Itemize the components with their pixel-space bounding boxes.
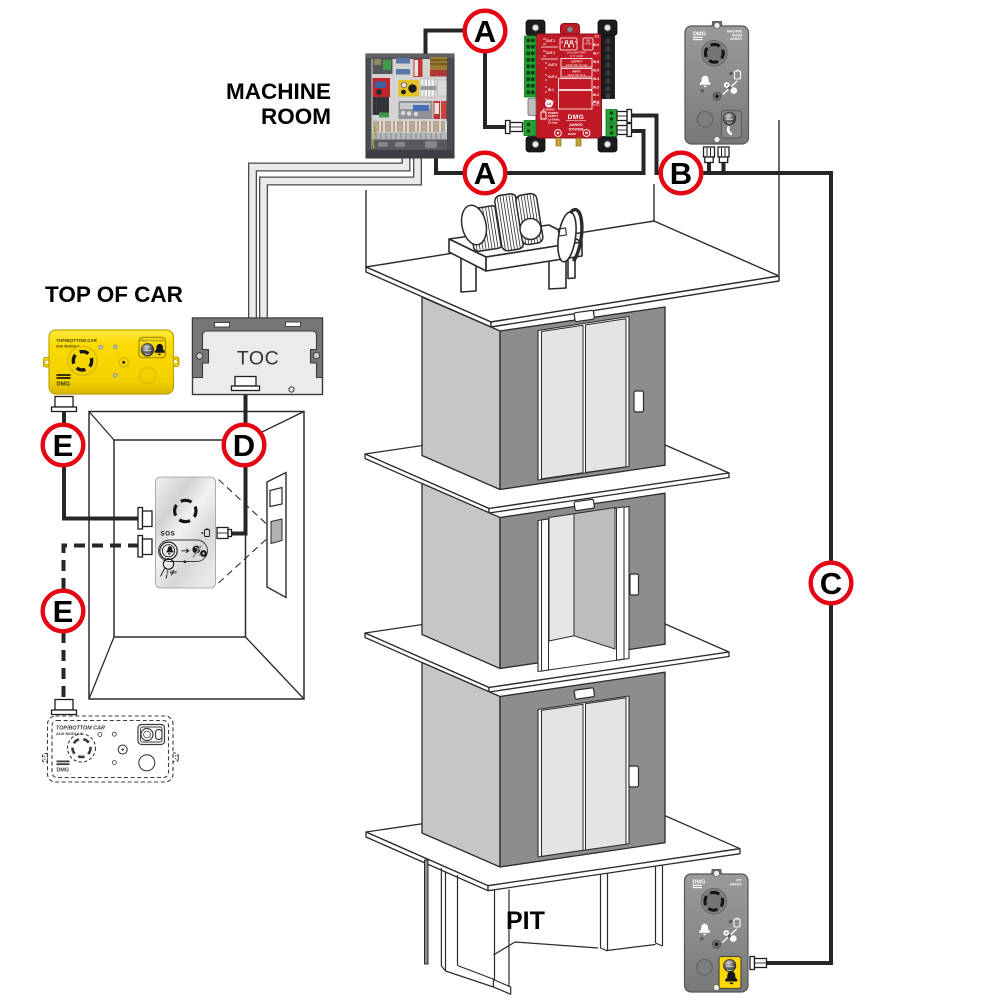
svg-text:DMG: DMG	[57, 768, 70, 774]
svg-text:D: D	[233, 428, 255, 463]
svg-text:CE: CE	[592, 102, 600, 108]
svg-text:12/24 Vdc 1A max: 12/24 Vdc 1A max	[566, 63, 588, 67]
svg-text:TOP OF CAR: TOP OF CAR	[45, 282, 183, 307]
svg-text:PRESS FOR ALARM: PRESS FOR ALARM	[140, 339, 164, 342]
svg-text:IN.1: IN.1	[548, 88, 554, 92]
svg-text:AARGO: AARGO	[730, 882, 742, 886]
svg-text:OUT.1: OUT.1	[546, 39, 555, 43]
svg-text:P.1: P.1	[595, 35, 600, 39]
svg-text:E: E	[53, 428, 74, 463]
svg-text:SOS: SOS	[161, 531, 176, 538]
svg-text:B: B	[670, 156, 692, 191]
svg-text:AARGO: AARGO	[730, 37, 742, 41]
svg-text:IN.7: IN.7	[593, 52, 599, 56]
svg-text:3.7V 4.2Ah: 3.7V 4.2Ah	[570, 54, 584, 58]
svg-text:IN.2: IN.2	[593, 93, 599, 97]
svg-text:A: A	[474, 14, 496, 49]
svg-text:OUT.3: OUT.3	[548, 63, 557, 67]
svg-text:MAIN: MAIN	[568, 132, 576, 136]
svg-text:ROOM: ROOM	[261, 104, 331, 129]
svg-text:DMG: DMG	[57, 382, 71, 388]
svg-text:E: E	[53, 594, 74, 629]
svg-text:IN.6: IN.6	[593, 60, 599, 64]
svg-text:MACHINE: MACHINE	[226, 79, 331, 104]
svg-text:PIT: PIT	[506, 907, 545, 935]
svg-text:IN.5: IN.5	[593, 69, 599, 73]
svg-text:TOC: TOC	[237, 348, 279, 370]
svg-text:12/24 Vdc 5mA: 12/24 Vdc 5mA	[567, 73, 586, 77]
svg-text:SYSTEM: SYSTEM	[569, 128, 584, 132]
svg-text:DMG: DMG	[568, 114, 585, 121]
svg-text:IN.8: IN.8	[593, 43, 599, 47]
svg-text:AARGO: AARGO	[569, 123, 583, 127]
svg-text:CAN BUS: CAN BUS	[543, 108, 555, 112]
svg-text:OUT.2: OUT.2	[546, 51, 555, 55]
svg-text:TOP/BOTTOM CAR: TOP/BOTTOM CAR	[56, 338, 98, 343]
svg-text:A: A	[474, 156, 496, 191]
svg-text:3 sec: 3 sec	[166, 570, 178, 575]
svg-text:IN.4: IN.4	[593, 77, 599, 81]
svg-text:OUT.4: OUT.4	[548, 75, 557, 79]
svg-text:CARD: CARD	[585, 43, 592, 46]
svg-text:LA: LA	[547, 102, 552, 106]
svg-text:AUX MODULE: AUX MODULE	[56, 731, 83, 736]
svg-text:C: C	[820, 566, 842, 601]
svg-text:IN.3: IN.3	[593, 86, 599, 90]
svg-text:2A max: 2A max	[548, 121, 558, 125]
